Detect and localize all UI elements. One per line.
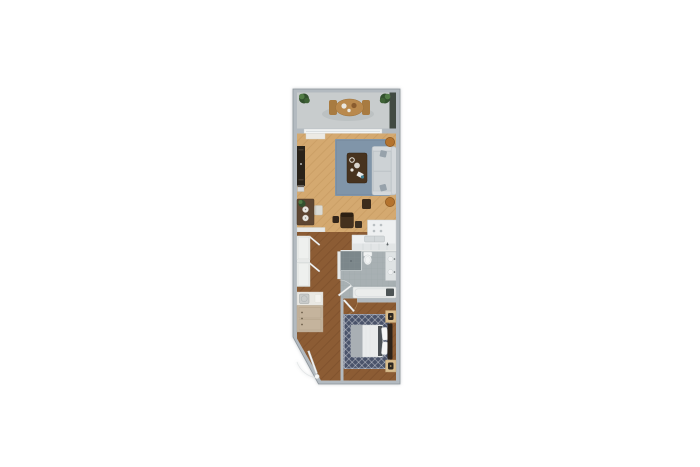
tub-fixture [386, 289, 394, 297]
hall-partition-wall [297, 228, 325, 233]
nightstand-bottom [386, 360, 397, 372]
room-living [297, 134, 396, 233]
toilet [364, 252, 373, 265]
side-stool-top [385, 137, 394, 146]
sofa [372, 147, 396, 196]
coffee-table [347, 153, 367, 183]
room-bathroom [338, 250, 397, 299]
pouf [333, 216, 340, 223]
dark-chair-1 [341, 213, 354, 229]
room-bedroom [344, 311, 397, 373]
floor-plan-image [293, 89, 401, 394]
bedroom-left-wall [341, 299, 344, 381]
sofa-arm-bottom [373, 191, 391, 195]
sofa-pillow-top [379, 150, 387, 158]
nightstand-top [386, 311, 397, 323]
closet-lower [297, 263, 310, 287]
white-chair [315, 206, 323, 216]
sofa-arm-top [373, 147, 391, 151]
headboard [388, 324, 393, 360]
closet-upper [297, 236, 310, 260]
sliding-glass-door [304, 129, 382, 134]
door-knob [315, 374, 320, 379]
side-stool-bottom [385, 197, 394, 206]
patio-dining-set [329, 99, 370, 116]
tv-console [297, 146, 305, 186]
blanket [351, 325, 363, 357]
cabinet-faces [352, 244, 396, 252]
vanity [386, 252, 397, 281]
room-kitchen [352, 220, 396, 251]
patio-table [336, 99, 364, 116]
counter-appliance [355, 221, 362, 228]
dark-window-band [390, 93, 397, 129]
dark-chair-2 [362, 199, 371, 209]
bathtub [353, 287, 396, 298]
pillow-top [381, 327, 388, 340]
media-box [298, 186, 305, 192]
unit-body [297, 306, 323, 333]
room-balcony [297, 93, 396, 129]
shower-drain [350, 260, 352, 262]
bistro-table [297, 199, 314, 225]
pillow-bottom [381, 342, 388, 355]
sofa-back [392, 148, 396, 195]
window-bench [306, 134, 325, 140]
laundry-storage-unit [297, 292, 323, 332]
bathroom-wall [338, 252, 341, 280]
page-canvas [0, 0, 700, 467]
